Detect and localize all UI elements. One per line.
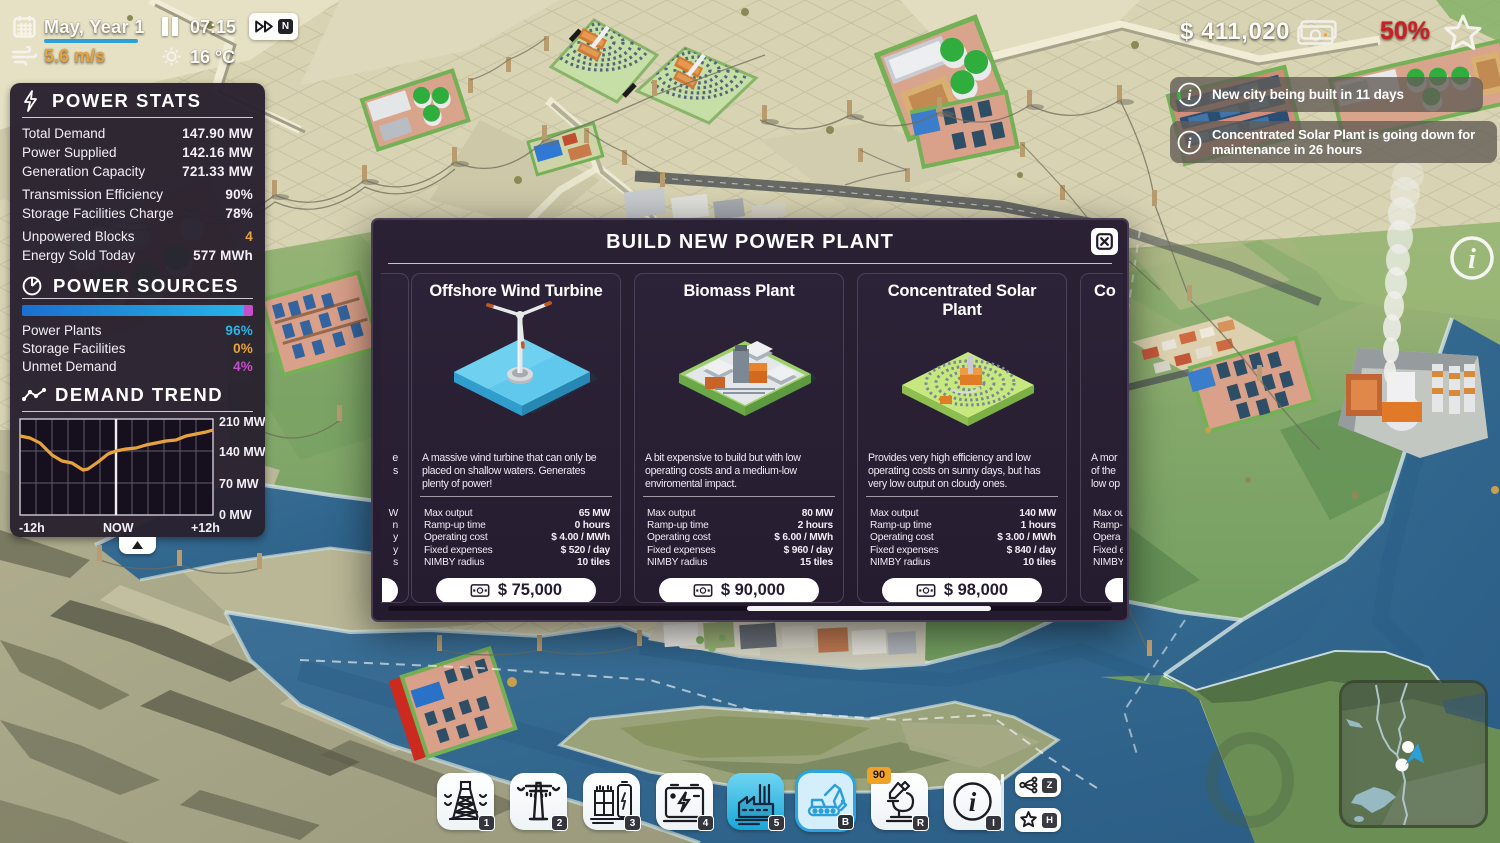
svg-text:i: i	[969, 787, 977, 817]
svg-text:i: i	[1187, 136, 1192, 152]
svg-text:i: i	[1187, 88, 1192, 104]
svg-text:0 MW: 0 MW	[219, 508, 252, 522]
svg-text:NOW: NOW	[103, 521, 134, 533]
svg-text:+12h: +12h	[191, 521, 220, 533]
svg-text:210 MW: 210 MW	[219, 415, 265, 429]
svg-text:140 MW: 140 MW	[219, 445, 265, 459]
svg-text:-12h: -12h	[19, 521, 45, 533]
svg-text:70 MW: 70 MW	[219, 477, 259, 491]
svg-text:i: i	[1468, 244, 1476, 275]
